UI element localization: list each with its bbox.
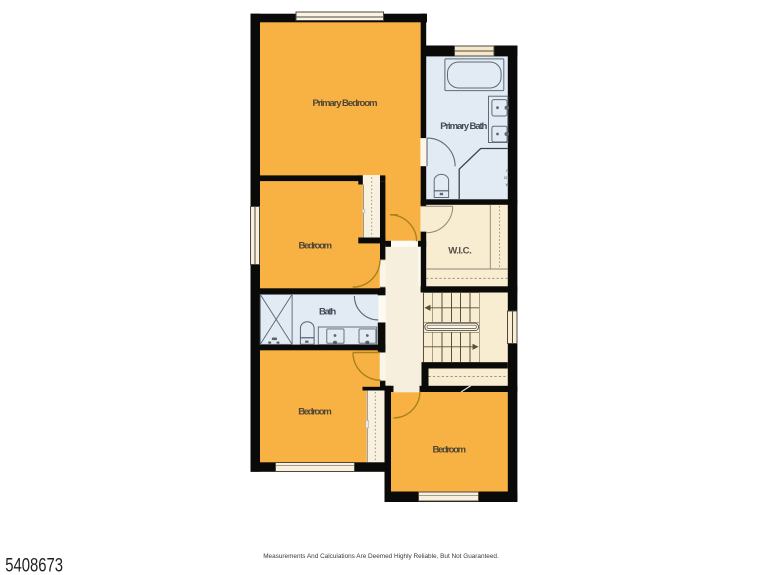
svg-text:R: R — [506, 169, 509, 173]
svg-text:Bedroom: Bedroom — [433, 444, 467, 455]
svg-text:Bedroom: Bedroom — [299, 240, 333, 251]
svg-text:Bedroom: Bedroom — [298, 406, 332, 417]
svg-text:CH: CH — [504, 176, 510, 180]
svg-text:5408673: 5408673 — [5, 553, 63, 575]
svg-text:Bath: Bath — [319, 307, 336, 318]
svg-text:W.I.C.: W.I.C. — [448, 245, 472, 256]
svg-text:Primary Bath: Primary Bath — [440, 121, 487, 132]
svg-text:Measurements And Calculations: Measurements And Calculations Are Deemed… — [263, 553, 499, 560]
svg-text:W: W — [506, 183, 510, 187]
svg-text:Primary Bedroom: Primary Bedroom — [313, 98, 378, 109]
